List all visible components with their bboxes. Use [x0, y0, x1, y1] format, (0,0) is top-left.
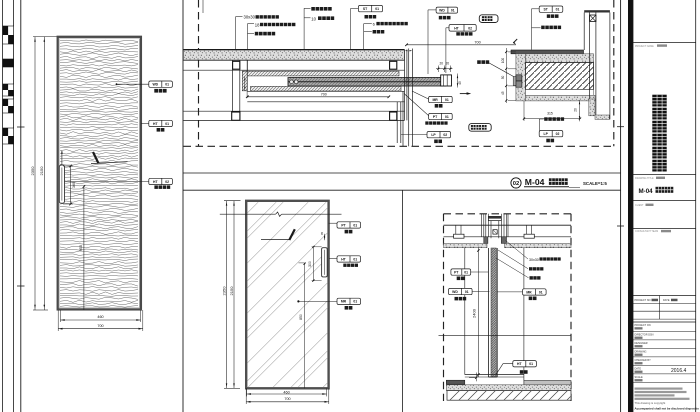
svg-text:01: 01: [353, 300, 357, 304]
svg-text:300: 300: [308, 261, 312, 267]
svg-text:30x30: 30x30: [529, 258, 539, 262]
svg-text:01: 01: [539, 290, 543, 294]
svg-text:2150: 2150: [229, 286, 234, 296]
svg-text:50: 50: [501, 76, 505, 80]
svg-text:01: 01: [451, 8, 455, 12]
svg-text:850: 850: [299, 314, 303, 320]
svg-text:01: 01: [445, 115, 449, 119]
svg-text:45: 45: [458, 81, 462, 85]
svg-text:45: 45: [320, 232, 324, 236]
svg-text:02: 02: [556, 132, 560, 136]
svg-text:LP: LP: [431, 133, 436, 137]
svg-text:CONSULTANT TEAM: CONSULTANT TEAM: [635, 230, 658, 233]
svg-text:100: 100: [501, 58, 505, 64]
svg-text:700: 700: [321, 93, 327, 97]
svg-text:20: 20: [446, 61, 450, 65]
svg-text:700: 700: [474, 40, 480, 44]
svg-text:700: 700: [97, 324, 103, 328]
svg-text:02: 02: [468, 26, 472, 30]
svg-text:30x30: 30x30: [244, 15, 256, 20]
svg-text:460: 460: [283, 390, 289, 394]
svg-text:WD: WD: [452, 290, 458, 294]
svg-text:DRAWING: DRAWING: [635, 350, 647, 353]
svg-text:MR: MR: [526, 290, 532, 294]
svg-text:10: 10: [311, 16, 316, 21]
svg-text:DATE: DATE: [663, 299, 670, 302]
svg-text:2150: 2150: [39, 166, 44, 176]
svg-text:02: 02: [443, 133, 447, 137]
svg-text:Accompanied shall not be discl: Accompanied shall not be disclosed dispo…: [635, 407, 700, 411]
svg-text:02: 02: [513, 181, 519, 187]
svg-text:45: 45: [501, 91, 505, 95]
svg-text:SCALE: SCALE: [635, 376, 644, 379]
svg-text:2350: 2350: [30, 166, 35, 176]
svg-text:DRAWING TITLE: DRAWING TITLE: [635, 177, 654, 180]
svg-text:M-04: M-04: [525, 177, 545, 187]
svg-text:PROJECT ON: PROJECT ON: [635, 324, 651, 327]
svg-text:300: 300: [72, 182, 76, 188]
svg-text:01: 01: [375, 7, 379, 11]
svg-text:01: 01: [465, 290, 469, 294]
svg-text:PROJECT NO: PROJECT NO: [635, 299, 651, 302]
svg-text:CLIENT: CLIENT: [635, 204, 644, 207]
svg-text:01: 01: [165, 122, 169, 126]
svg-text:01: 01: [464, 270, 468, 274]
svg-text:CHECKED BY: CHECKED BY: [635, 359, 652, 362]
svg-text:01: 01: [529, 362, 533, 366]
svg-text:950: 950: [79, 245, 83, 251]
svg-text:01: 01: [353, 257, 357, 261]
svg-text:2400: 2400: [472, 308, 477, 318]
svg-text:20: 20: [440, 61, 444, 65]
svg-text:MR: MR: [432, 98, 438, 102]
svg-text:M-04: M-04: [639, 188, 654, 195]
svg-text:LP: LP: [544, 132, 549, 136]
svg-text:2350: 2350: [221, 286, 226, 296]
svg-text:MR: MR: [341, 300, 347, 304]
svg-text:WD: WD: [152, 83, 158, 87]
svg-text:DATE: DATE: [635, 367, 642, 370]
svg-text:700: 700: [284, 397, 290, 401]
svg-text:460: 460: [97, 315, 103, 319]
svg-text:01: 01: [165, 83, 169, 87]
svg-text:18: 18: [255, 22, 260, 27]
svg-text:SCALE=1:5: SCALE=1:5: [583, 181, 607, 186]
svg-text:02: 02: [165, 180, 169, 184]
svg-text:20: 20: [574, 108, 578, 112]
svg-text:2016.4: 2016.4: [671, 368, 687, 374]
svg-text:01: 01: [353, 223, 357, 227]
svg-text:01: 01: [445, 98, 449, 102]
svg-text:01: 01: [556, 8, 560, 12]
svg-text:WD: WD: [439, 8, 445, 12]
svg-text:DESIGNER: DESIGNER: [635, 342, 648, 345]
svg-text:315: 315: [547, 112, 553, 116]
svg-text:This drawing is copyright: This drawing is copyright: [635, 401, 666, 405]
svg-text:DIRECTOR DSN: DIRECTOR DSN: [635, 333, 654, 336]
svg-text:PROJECT NAME: PROJECT NAME: [635, 45, 654, 48]
